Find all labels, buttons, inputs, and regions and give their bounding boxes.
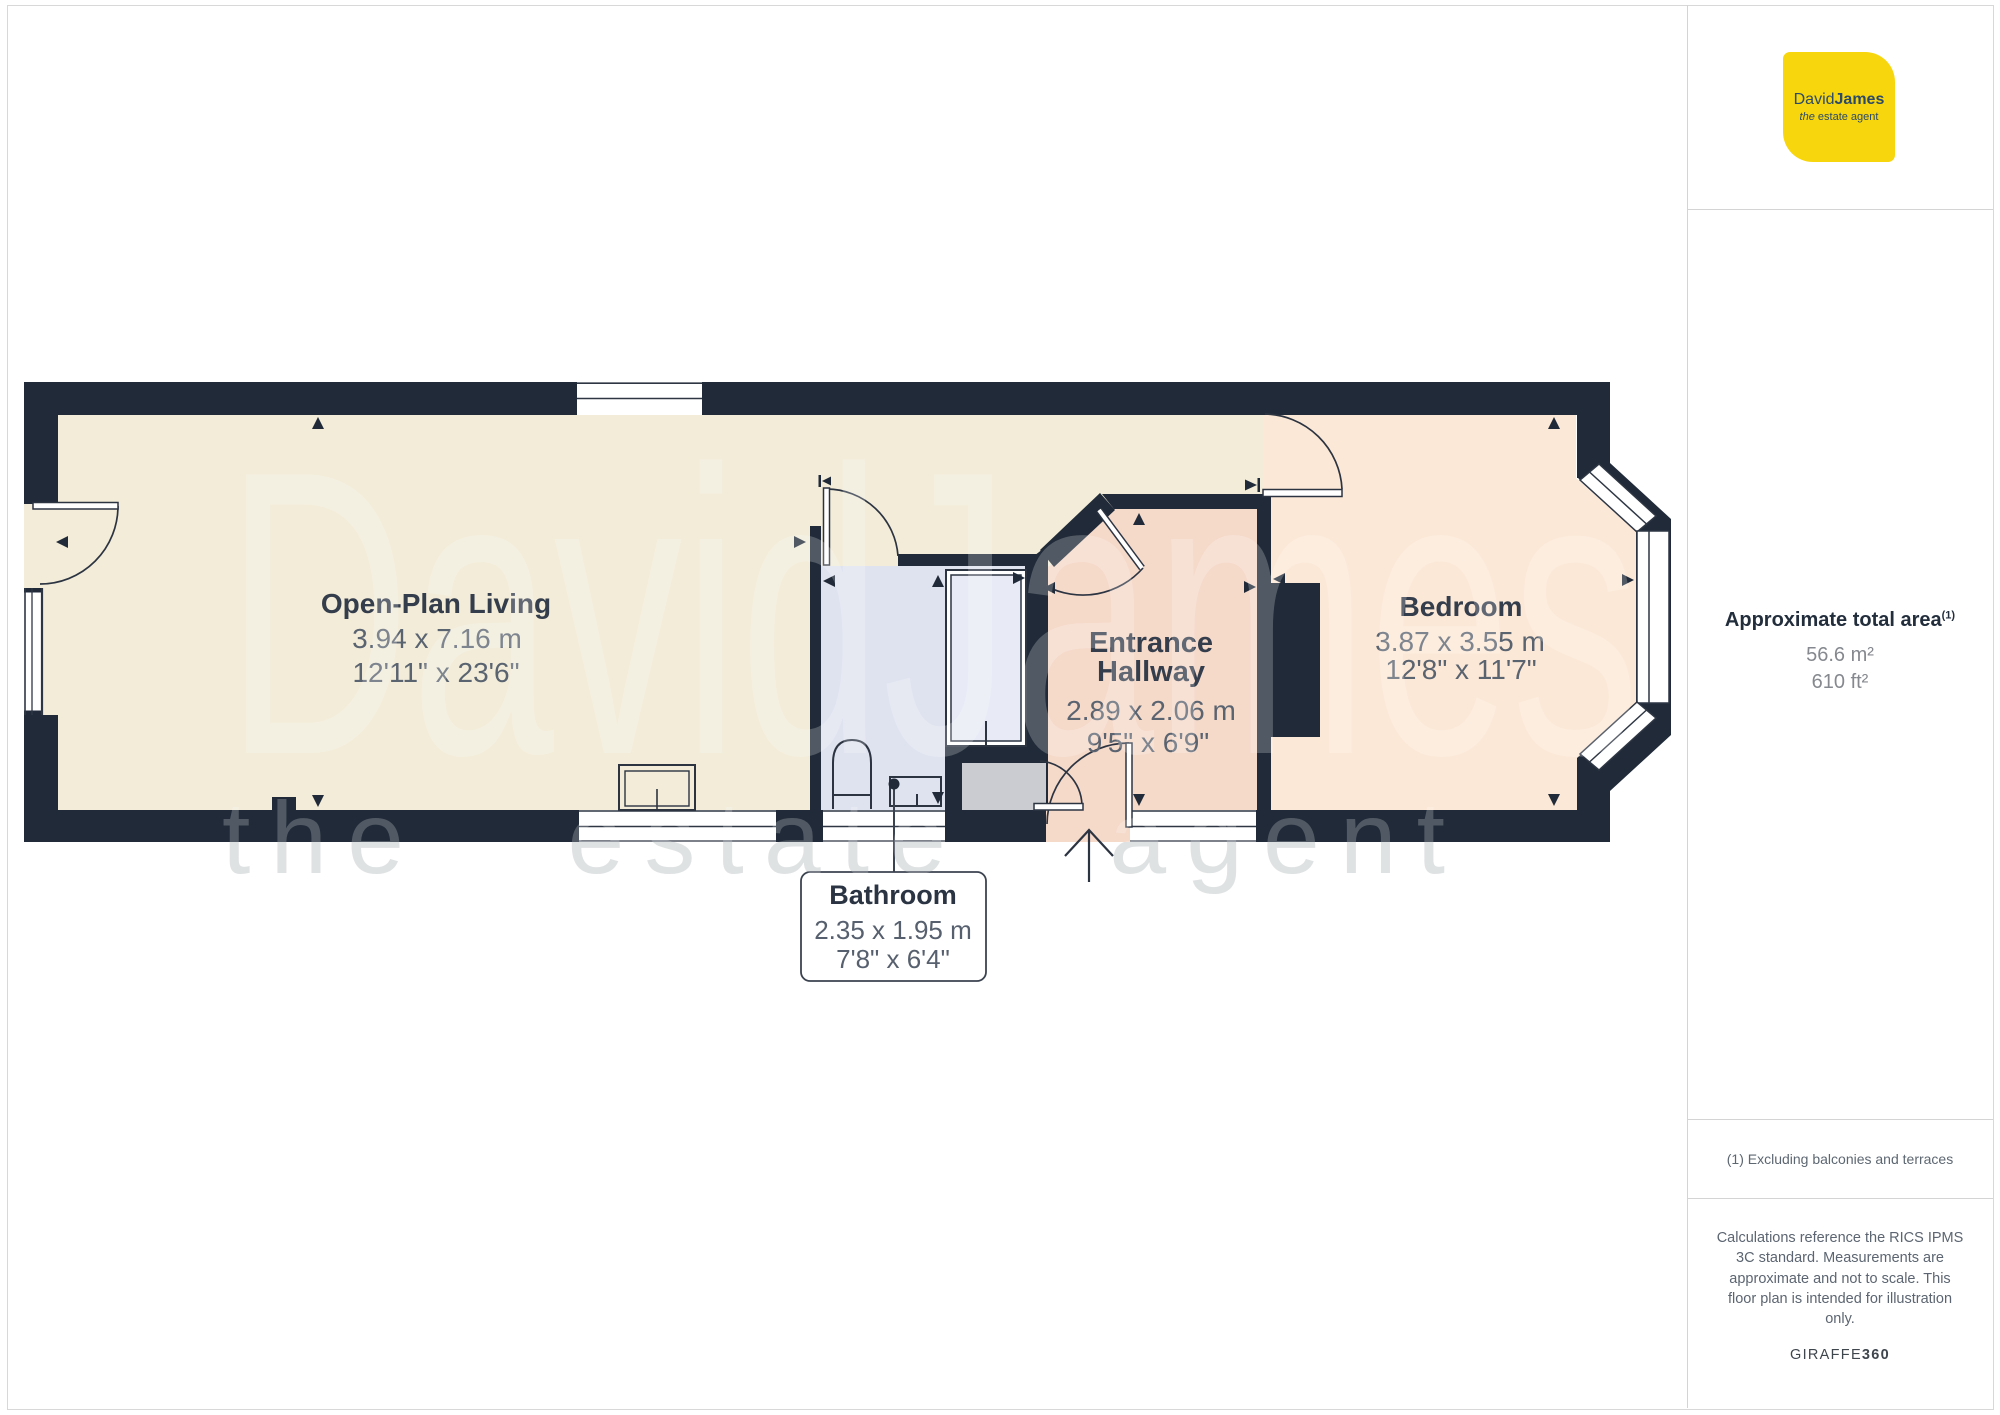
svg-text:DavidJames: DavidJames	[225, 386, 1640, 839]
svg-text:2.35 x 1.95 m: 2.35 x 1.95 m	[814, 915, 972, 945]
svg-text:7'8" x 6'4": 7'8" x 6'4"	[836, 944, 950, 974]
